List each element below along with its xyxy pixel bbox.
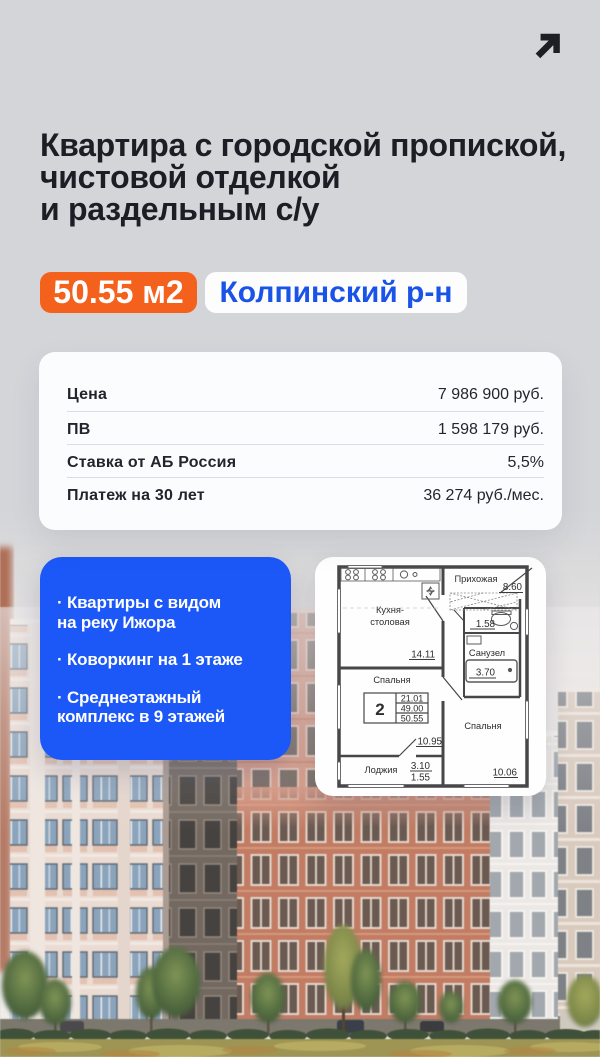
svg-text:Лоджия: Лоджия xyxy=(365,765,398,775)
svg-text:Кухня-: Кухня- xyxy=(376,605,404,615)
svg-text:Спальня: Спальня xyxy=(464,721,501,731)
svg-text:50.55: 50.55 xyxy=(401,714,424,724)
svg-text:Прихожая: Прихожая xyxy=(454,574,497,584)
svg-text:49.00: 49.00 xyxy=(401,704,424,714)
svg-text:Спальня: Спальня xyxy=(373,675,410,685)
svg-text:10.95: 10.95 xyxy=(417,737,442,748)
svg-text:1.58: 1.58 xyxy=(476,619,496,630)
svg-text:Санузел: Санузел xyxy=(469,648,505,658)
svg-text:2: 2 xyxy=(375,700,384,719)
svg-text:1.55: 1.55 xyxy=(411,773,431,784)
svg-text:3.10: 3.10 xyxy=(411,761,431,772)
svg-text:столовая: столовая xyxy=(370,617,410,627)
svg-text:8.60: 8.60 xyxy=(503,582,523,593)
svg-text:10.06: 10.06 xyxy=(492,768,517,779)
svg-text:3.70: 3.70 xyxy=(476,668,496,679)
svg-text:14.11: 14.11 xyxy=(411,650,435,661)
svg-text:21.01: 21.01 xyxy=(401,694,424,704)
